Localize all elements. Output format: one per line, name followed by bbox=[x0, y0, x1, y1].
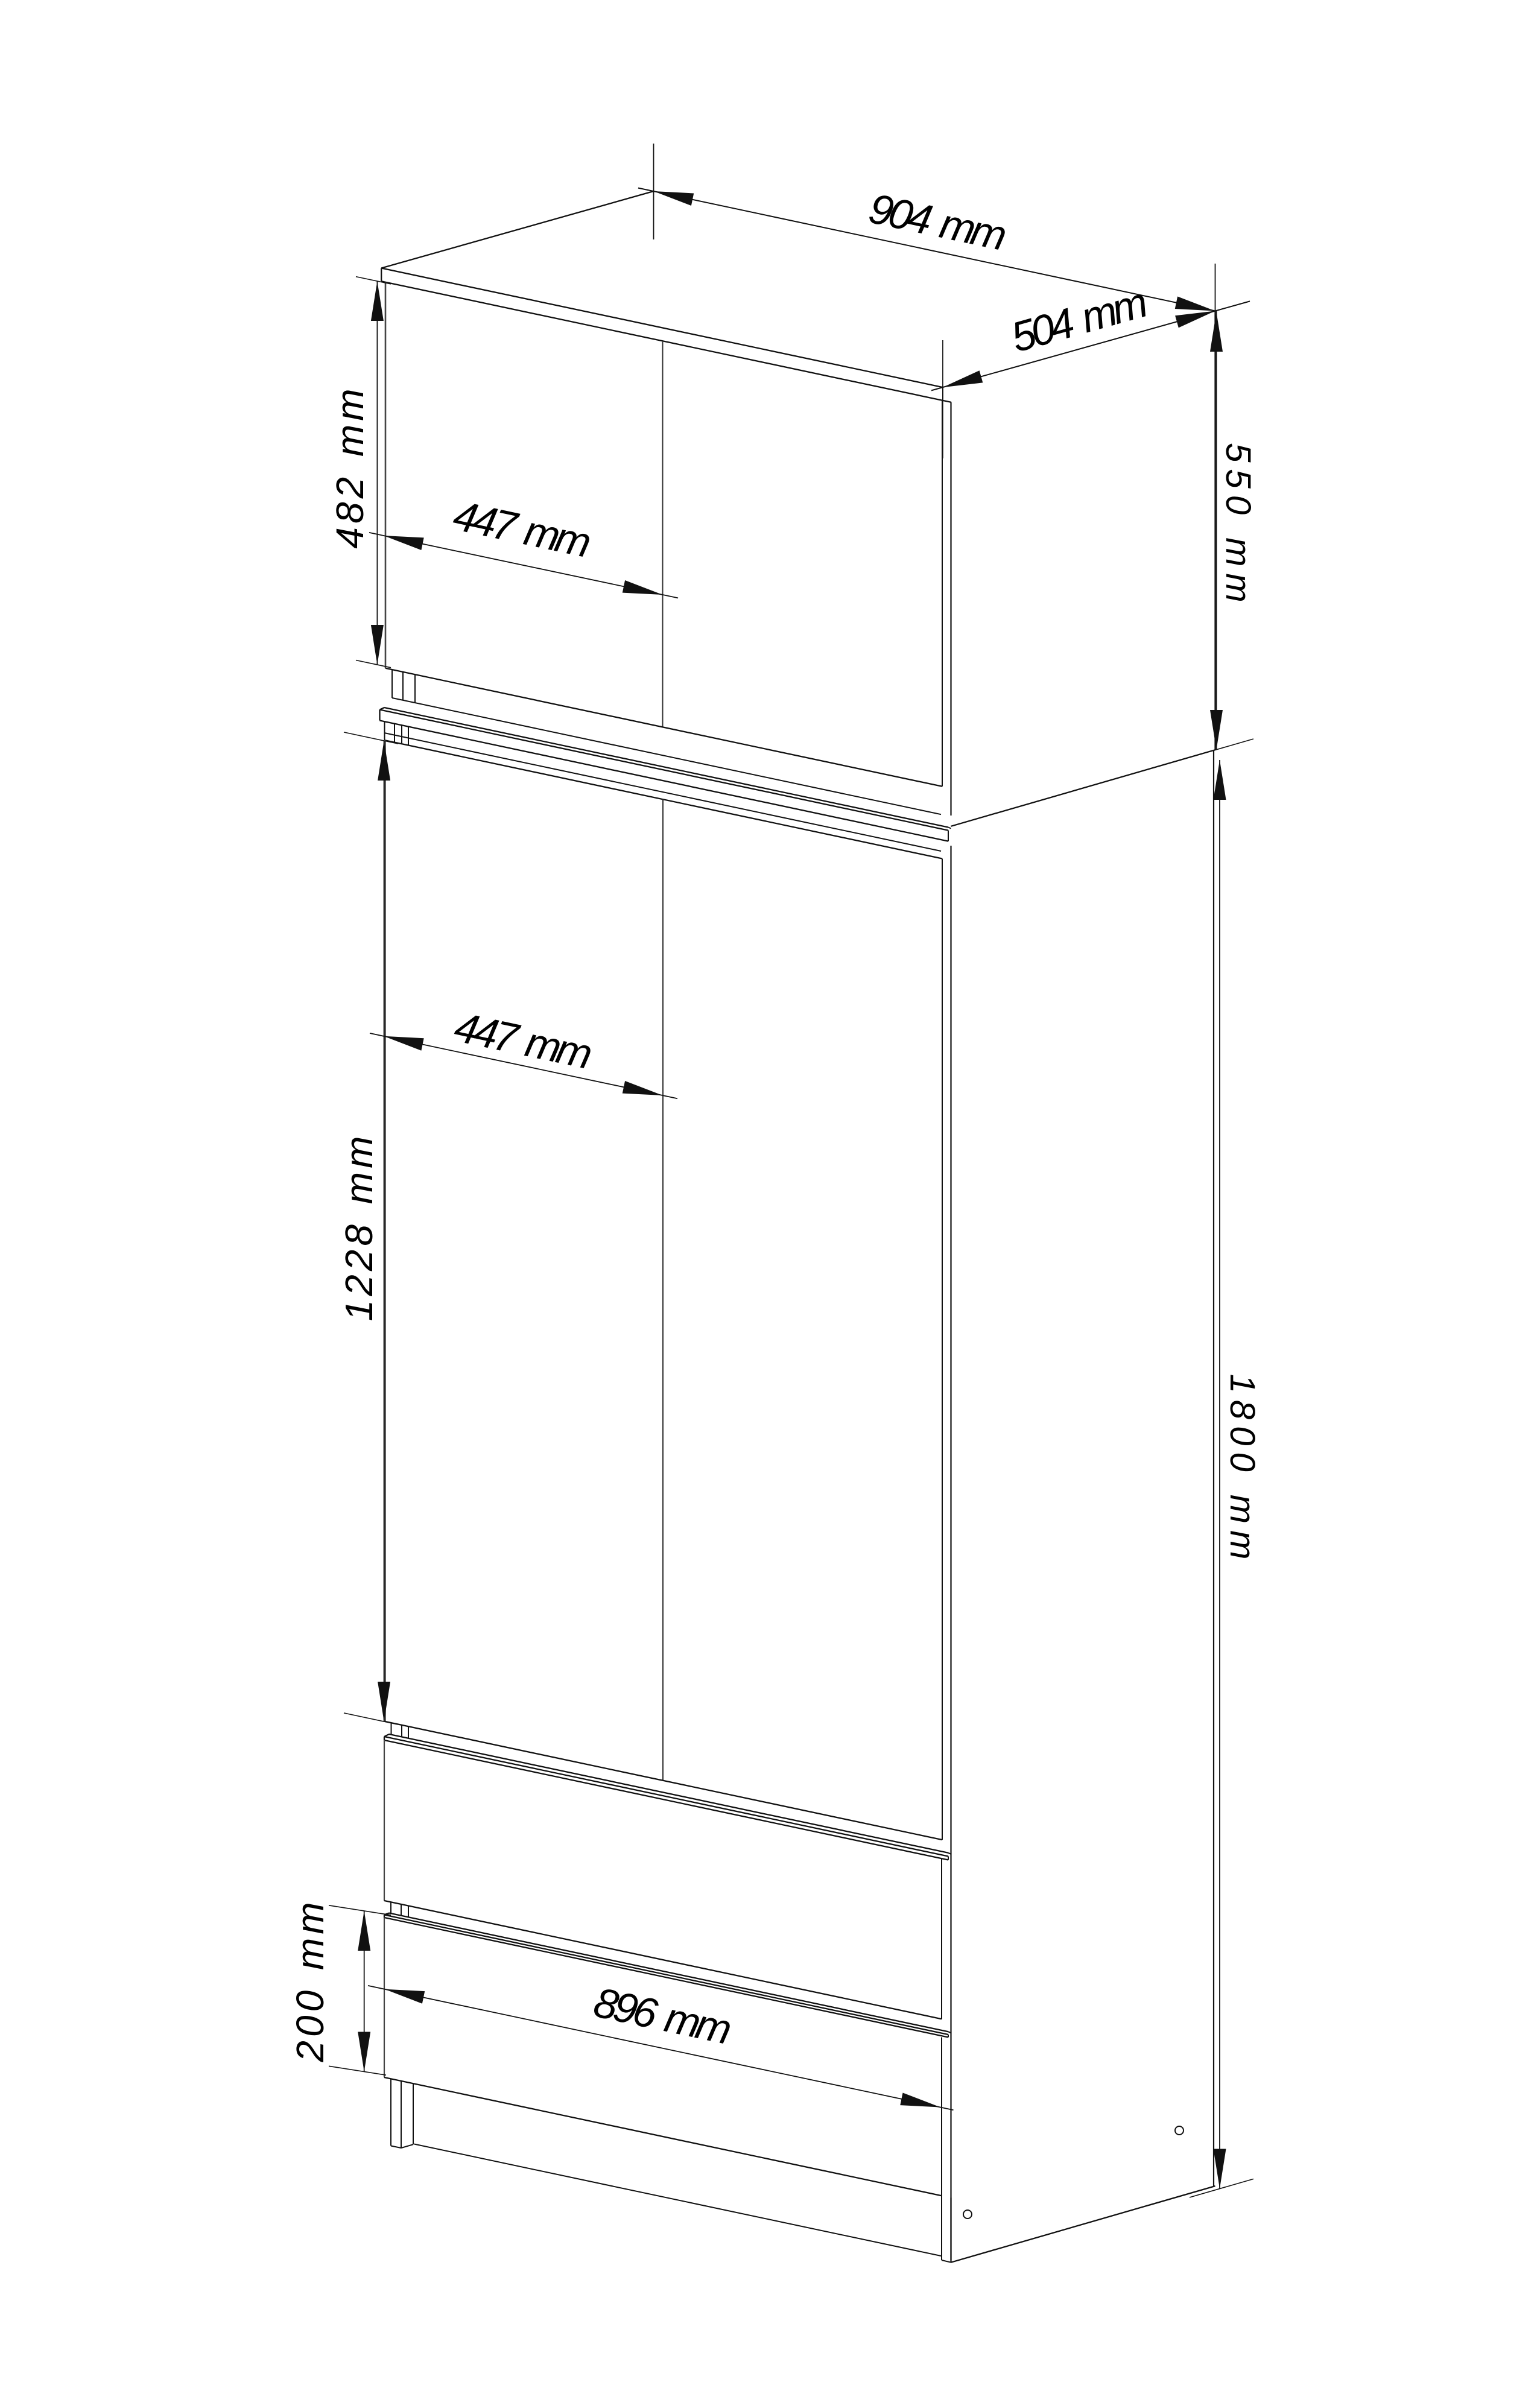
svg-text:1800 mm: 1800 mm bbox=[1223, 1374, 1262, 1566]
svg-text:482 mm: 482 mm bbox=[328, 385, 372, 548]
svg-text:1228 mm: 1228 mm bbox=[337, 1133, 381, 1322]
svg-text:200 mm: 200 mm bbox=[288, 1898, 332, 2062]
svg-text:550 mm: 550 mm bbox=[1218, 443, 1258, 609]
